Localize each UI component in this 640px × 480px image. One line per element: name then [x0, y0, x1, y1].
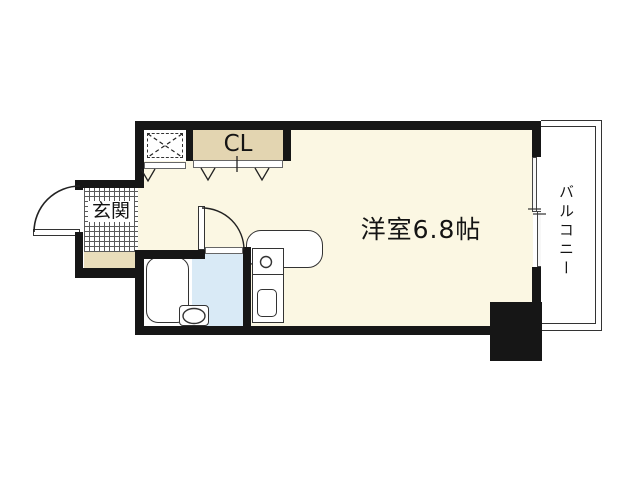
closet-right-wall	[283, 130, 291, 161]
wall-entrance-left-stub	[75, 180, 83, 190]
entrance-step	[84, 252, 138, 268]
balcony-window-pane-upper	[532, 157, 537, 212]
wall-right-upper	[532, 121, 541, 157]
wall-entrance-bottom	[75, 268, 144, 278]
closet-divider-wall	[186, 130, 193, 161]
entrance-door-swing-arc	[34, 186, 80, 232]
bath-door-leaf	[198, 206, 205, 250]
wall-right-lower	[532, 267, 541, 302]
kitchen-sink-basin	[257, 289, 277, 317]
storage-door-track	[144, 162, 186, 169]
wall-bath-left	[135, 250, 144, 335]
wall-top	[135, 121, 541, 130]
closet-label: CL	[193, 131, 283, 157]
wall-kitchen-divider	[243, 247, 251, 335]
closet-door-track	[193, 160, 283, 168]
bath-door-threshold	[205, 247, 243, 254]
balcony-label: バルコニー	[556, 165, 577, 297]
kitchen-burner-unit	[252, 248, 284, 275]
wall-bath-top	[135, 250, 205, 259]
storage-box-dashed-border	[147, 133, 183, 158]
entrance-label: 玄関	[88, 201, 134, 222]
floor-plan: 洋室6.8帖 CL 玄関 バルコニー	[0, 0, 640, 480]
pillar	[490, 302, 542, 361]
wall-bottom	[135, 326, 490, 335]
toilet	[179, 305, 209, 326]
main-room-label: 洋室6.8帖	[340, 210, 502, 246]
wall-entrance-top	[75, 180, 144, 188]
entrance-door-leaf	[33, 229, 80, 236]
wall-left-upper	[135, 121, 144, 188]
